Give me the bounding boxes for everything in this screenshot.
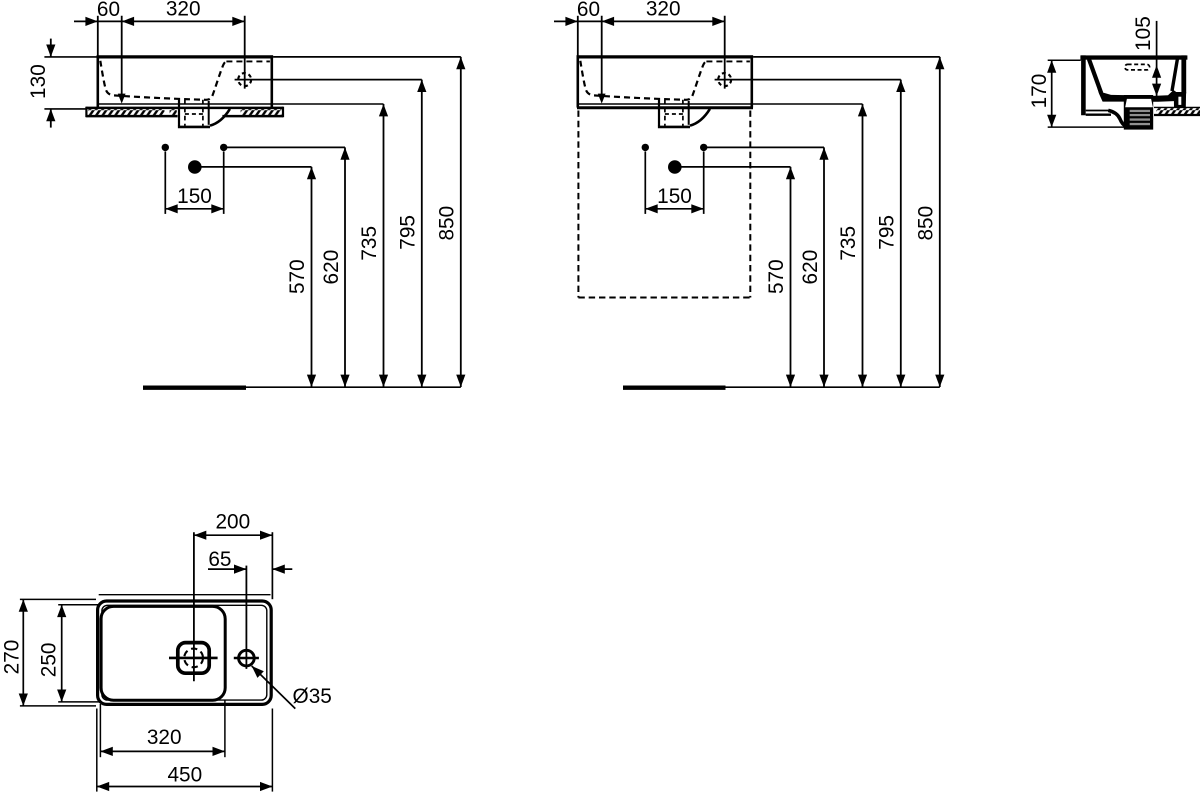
svg-text:620: 620 [320,250,343,285]
svg-text:105: 105 [1132,16,1155,51]
svg-text:130: 130 [27,64,50,99]
svg-text:620: 620 [799,250,822,285]
svg-text:570: 570 [765,259,788,294]
svg-text:270: 270 [1,640,24,675]
svg-text:570: 570 [286,259,309,294]
svg-text:Ø35: Ø35 [293,685,332,708]
svg-text:850: 850 [436,206,459,241]
svg-text:320: 320 [147,726,182,749]
svg-text:200: 200 [215,511,250,534]
svg-text:795: 795 [876,215,899,250]
svg-text:65: 65 [208,548,231,571]
svg-text:450: 450 [167,764,202,787]
svg-text:735: 735 [358,226,381,261]
svg-text:850: 850 [915,206,938,241]
svg-text:250: 250 [38,643,61,678]
svg-text:795: 795 [397,215,420,250]
svg-text:735: 735 [837,226,860,261]
svg-text:170: 170 [1028,74,1051,109]
